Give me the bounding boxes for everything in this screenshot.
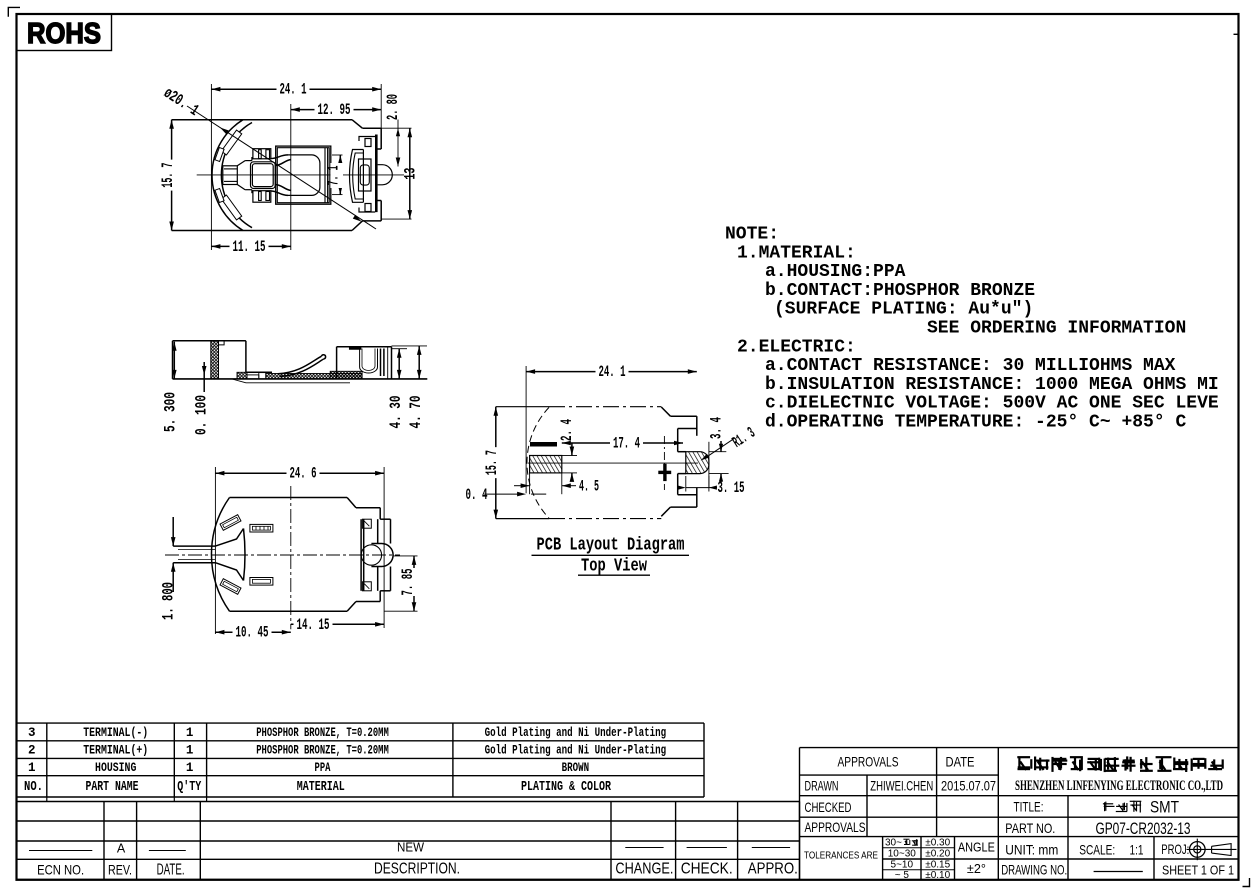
svg-text:ANGLE: ANGLE (958, 841, 995, 855)
svg-text:PART NAME: PART NAME (86, 780, 139, 795)
svg-text:30~: 30~ (885, 838, 902, 849)
svg-text:2: 2 (28, 744, 36, 758)
svg-text:17. 4: 17. 4 (613, 435, 640, 453)
svg-text:APPROVALS: APPROVALS (838, 754, 899, 770)
svg-text:CHECK.: CHECK. (681, 861, 733, 878)
svg-text:NOTE:: NOTE: (725, 225, 779, 245)
svg-text:Gold Plating and Ni Under-Plat: Gold Plating and Ni Under-Plating (485, 726, 667, 740)
svg-text:10~30: 10~30 (888, 849, 917, 860)
svg-text:1: 1 (28, 761, 36, 775)
svg-text:1: 1 (186, 761, 194, 775)
svg-text:d.OPERATING TEMPERATURE: -25°: d.OPERATING TEMPERATURE: -25° C~ +85° C (765, 413, 1186, 433)
svg-text:SEE ORDERING INFORMATION: SEE ORDERING INFORMATION (927, 319, 1186, 339)
svg-text:DRAWING NO.: DRAWING NO. (1001, 862, 1067, 878)
svg-text:SHEET 1 OF 1: SHEET 1 OF 1 (1162, 864, 1234, 878)
svg-text:BROWN: BROWN (562, 761, 590, 775)
svg-text:5~10: 5~10 (891, 859, 914, 870)
svg-text:3. 4: 3. 4 (708, 417, 726, 439)
svg-text:DATE: DATE (946, 754, 975, 770)
svg-text:~ 5: ~ 5 (895, 870, 910, 881)
svg-text:1: 1 (186, 726, 194, 740)
svg-text:4. 30: 4. 30 (387, 396, 405, 429)
svg-text:4. 5: 4. 5 (579, 478, 599, 496)
svg-text:b.CONTACT:PHOSPHOR BRONZE: b.CONTACT:PHOSPHOR BRONZE (765, 281, 1035, 301)
svg-text:(SURFACE PLATING: Au*u″): (SURFACE PLATING: Au*u″) (774, 300, 1033, 320)
svg-text:3: 3 (28, 726, 36, 740)
svg-text:10. 45: 10. 45 (236, 624, 269, 642)
svg-text:±0.15: ±0.15 (925, 859, 950, 870)
svg-text:NO.: NO. (24, 780, 43, 795)
svg-text:1.MATERIAL:: 1.MATERIAL: (737, 243, 856, 263)
svg-text:CHANGE.: CHANGE. (615, 861, 673, 878)
svg-text:DESCRIPTION.: DESCRIPTION. (374, 861, 460, 878)
svg-text:TERMINAL(-): TERMINAL(-) (83, 726, 148, 740)
svg-text:24. 1: 24. 1 (599, 363, 626, 381)
svg-text:APPRO.: APPRO. (748, 861, 798, 878)
svg-text:±0.20: ±0.20 (925, 849, 950, 860)
svg-text:Q'TY: Q'TY (177, 780, 202, 795)
svg-text:MATERIAL: MATERIAL (297, 780, 345, 795)
svg-text:±2°: ±2° (967, 862, 986, 876)
svg-text:11. 15: 11. 15 (233, 238, 266, 256)
svg-text:TITLE:: TITLE: (1014, 799, 1044, 815)
svg-text:1. 800: 1. 800 (160, 582, 178, 620)
svg-text:0. 4: 0. 4 (466, 486, 488, 504)
svg-text:c.DIELECTNIC VOLTAGE: 500V AC: c.DIELECTNIC VOLTAGE: 500V AC ONE SEC LE… (765, 394, 1219, 414)
svg-text:PHOSPHOR BRONZE, T=0.20MM: PHOSPHOR BRONZE, T=0.20MM (256, 744, 389, 758)
svg-text:A: A (117, 842, 126, 856)
svg-text:12. 95: 12. 95 (318, 101, 351, 119)
svg-text:1: 1 (186, 744, 194, 758)
svg-text:5. 300: 5. 300 (161, 392, 179, 432)
svg-text:24. 1: 24. 1 (280, 81, 307, 99)
svg-text:Top View: Top View (581, 557, 647, 577)
svg-text:GP07-CR2032-13: GP07-CR2032-13 (1096, 819, 1191, 838)
svg-text:DATE.: DATE. (157, 862, 185, 879)
svg-text:NEW: NEW (397, 841, 424, 855)
svg-text:ZHIWEI.CHEN: ZHIWEI.CHEN (870, 778, 933, 794)
svg-text:PLATING & COLOR: PLATING & COLOR (521, 780, 612, 795)
svg-text:SCALE:: SCALE: (1079, 842, 1115, 858)
svg-text:DRAWN: DRAWN (805, 778, 839, 794)
svg-text:ROHS: ROHS (27, 18, 101, 50)
svg-text:CHECKED: CHECKED (805, 799, 852, 815)
svg-text:4. 70: 4. 70 (407, 396, 425, 429)
svg-text:a.CONTACT RESISTANCE: 30 MILLI: a.CONTACT RESISTANCE: 30 MILLIOHMS MAX (765, 356, 1176, 376)
svg-text:PCB Layout Diagram: PCB Layout Diagram (537, 536, 685, 556)
svg-text:14. 15: 14. 15 (297, 616, 330, 634)
svg-text:7. 85: 7. 85 (399, 569, 417, 596)
svg-text:Gold Plating and Ni Under-Plat: Gold Plating and Ni Under-Plating (485, 744, 667, 758)
svg-text:2. 4: 2. 4 (558, 419, 576, 441)
svg-text:±0.10: ±0.10 (925, 870, 950, 881)
svg-text:2. 80: 2. 80 (384, 94, 402, 120)
svg-text:±0.30: ±0.30 (925, 838, 950, 849)
svg-text:APPROVALS: APPROVALS (805, 819, 866, 835)
svg-text:3. 15: 3. 15 (718, 479, 745, 497)
svg-text:PPA: PPA (315, 761, 331, 775)
svg-text:13: 13 (402, 168, 420, 180)
svg-text:1:1: 1:1 (1130, 842, 1144, 858)
svg-text:b.INSULATION RESISTANCE: 1000: b.INSULATION RESISTANCE: 1000 MEGA OHMS … (765, 375, 1219, 395)
svg-text:2.ELECTRIC:: 2.ELECTRIC: (737, 337, 856, 357)
svg-text:7. 1: 7. 1 (325, 166, 343, 186)
svg-text:TERMINAL(+): TERMINAL(+) (83, 744, 148, 758)
svg-text:HOUSING: HOUSING (95, 761, 136, 775)
svg-text:SMT: SMT (1150, 798, 1179, 817)
svg-text:a.HOUSING:PPA: a.HOUSING:PPA (765, 262, 906, 282)
svg-text:REV.: REV. (108, 861, 132, 877)
svg-text:15. 7: 15. 7 (483, 450, 501, 475)
svg-text:PART NO.: PART NO. (1005, 820, 1055, 836)
svg-text:PROJ:: PROJ: (1161, 841, 1189, 857)
svg-text:15. 7: 15. 7 (159, 163, 177, 188)
svg-text:TOLERANCES ARE: TOLERANCES ARE (804, 851, 878, 862)
svg-text:SHENZHEN LINFENYING ELECTRONIC: SHENZHEN LINFENYING ELECTRONIC CO.,LTD (1015, 778, 1223, 794)
svg-text:PHOSPHOR BRONZE, T=0.20MM: PHOSPHOR BRONZE, T=0.20MM (256, 726, 389, 740)
svg-text:2015.07.07: 2015.07.07 (941, 778, 996, 794)
svg-text:0. 100: 0. 100 (193, 395, 211, 435)
svg-text:ECN NO.: ECN NO. (37, 861, 84, 877)
svg-text:24. 6: 24. 6 (290, 465, 317, 483)
svg-text:UNIT: mm: UNIT: mm (1005, 842, 1058, 858)
